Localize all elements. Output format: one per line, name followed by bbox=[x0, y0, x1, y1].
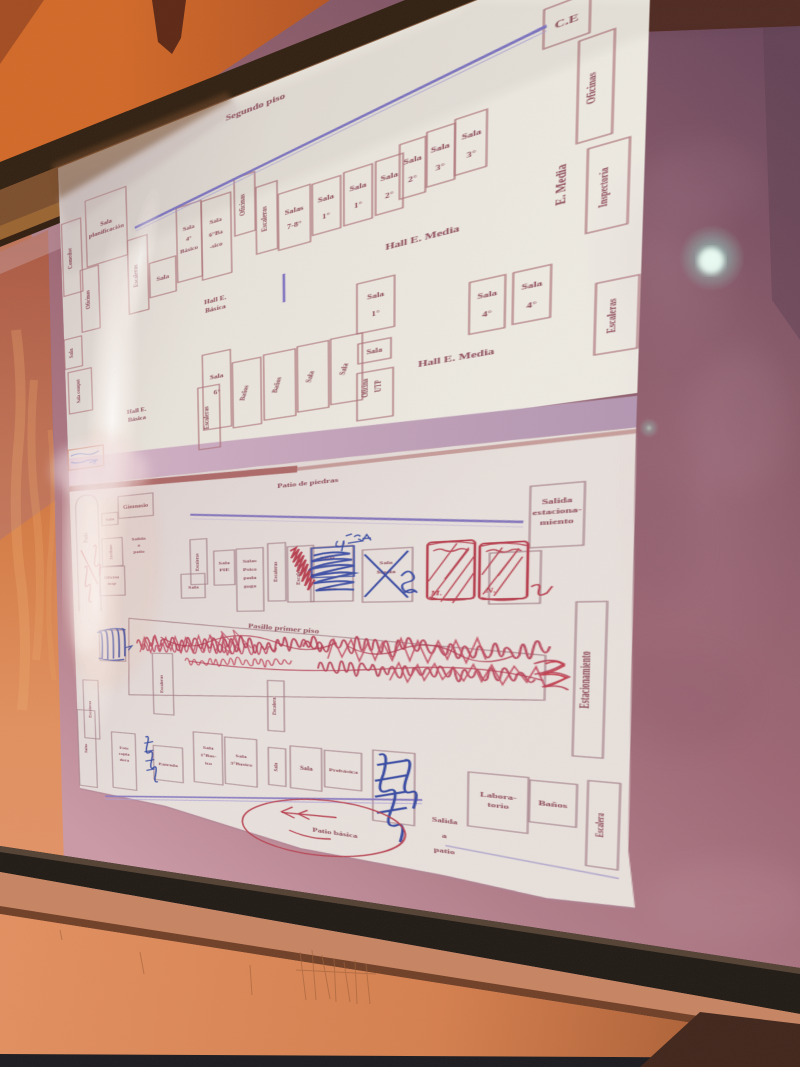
svg-text:Sala: Sala bbox=[188, 585, 199, 591]
svg-text:Escaleras: Escaleras bbox=[272, 562, 280, 583]
svg-text:Escaleras: Escaleras bbox=[195, 553, 201, 571]
svg-text:Patio: Patio bbox=[84, 532, 90, 543]
svg-text:Sala: Sala bbox=[380, 561, 394, 567]
svg-text:Psico: Psico bbox=[243, 567, 258, 573]
svg-text:Oficina: Oficina bbox=[362, 377, 371, 398]
svg-text:insp: insp bbox=[108, 582, 117, 587]
svg-text:Inspectoría: Inspectoría bbox=[599, 166, 612, 209]
svg-text:Oficinas: Oficinas bbox=[239, 192, 247, 217]
svg-text:goga: goga bbox=[244, 583, 257, 589]
svg-text:Foto: Foto bbox=[119, 746, 129, 751]
svg-text:N.: N. bbox=[484, 587, 497, 595]
svg-text:patio: patio bbox=[133, 549, 145, 555]
svg-text:Estacionamiento: Estacionamiento bbox=[579, 650, 594, 709]
svg-text:Escaleras: Escaleras bbox=[204, 405, 212, 430]
svg-text:Sala: Sala bbox=[105, 517, 114, 522]
svg-text:PIE: PIE bbox=[219, 567, 230, 573]
svg-text:Sala: Sala bbox=[203, 745, 214, 751]
svg-text:Oficina: Oficina bbox=[104, 576, 120, 581]
svg-text:Escaleras: Escaleras bbox=[261, 204, 269, 232]
svg-text:Salida: Salida bbox=[132, 536, 147, 542]
svg-text:Salas: Salas bbox=[243, 558, 257, 564]
svg-text:Escalera: Escalera bbox=[596, 812, 608, 838]
svg-text:UTP: UTP bbox=[375, 378, 384, 392]
svg-text:peda: peda bbox=[243, 575, 257, 581]
svg-text:Escaleras: Escaleras bbox=[87, 701, 93, 718]
svg-text:E. Media: E. Media bbox=[552, 162, 570, 207]
svg-text:6°: 6° bbox=[213, 388, 220, 396]
svg-text:Escalera: Escalera bbox=[271, 697, 279, 715]
svg-text:a: a bbox=[442, 833, 447, 840]
svg-text:Jardines: Jardines bbox=[109, 544, 114, 559]
svg-text:Sala: Sala bbox=[272, 762, 280, 772]
svg-text:M.: M. bbox=[429, 590, 443, 598]
svg-text:Escaleras: Escaleras bbox=[133, 263, 140, 288]
svg-text:Sala: Sala bbox=[236, 753, 248, 760]
svg-text:Oficinas: Oficinas bbox=[85, 289, 92, 310]
svg-text:Escaleras: Escaleras bbox=[159, 675, 166, 693]
svg-text:Comedor: Comedor bbox=[68, 246, 75, 269]
svg-text:Oficinas: Oficinas bbox=[585, 69, 600, 105]
svg-text:Salas: Salas bbox=[83, 744, 89, 754]
svg-text:Escaleras: Escaleras bbox=[605, 297, 620, 334]
svg-text:Sala comput: Sala comput bbox=[76, 378, 83, 403]
svg-text:ico: ico bbox=[205, 761, 213, 767]
svg-text:Sala: Sala bbox=[219, 560, 231, 566]
svg-text:Sala: Sala bbox=[69, 348, 75, 359]
